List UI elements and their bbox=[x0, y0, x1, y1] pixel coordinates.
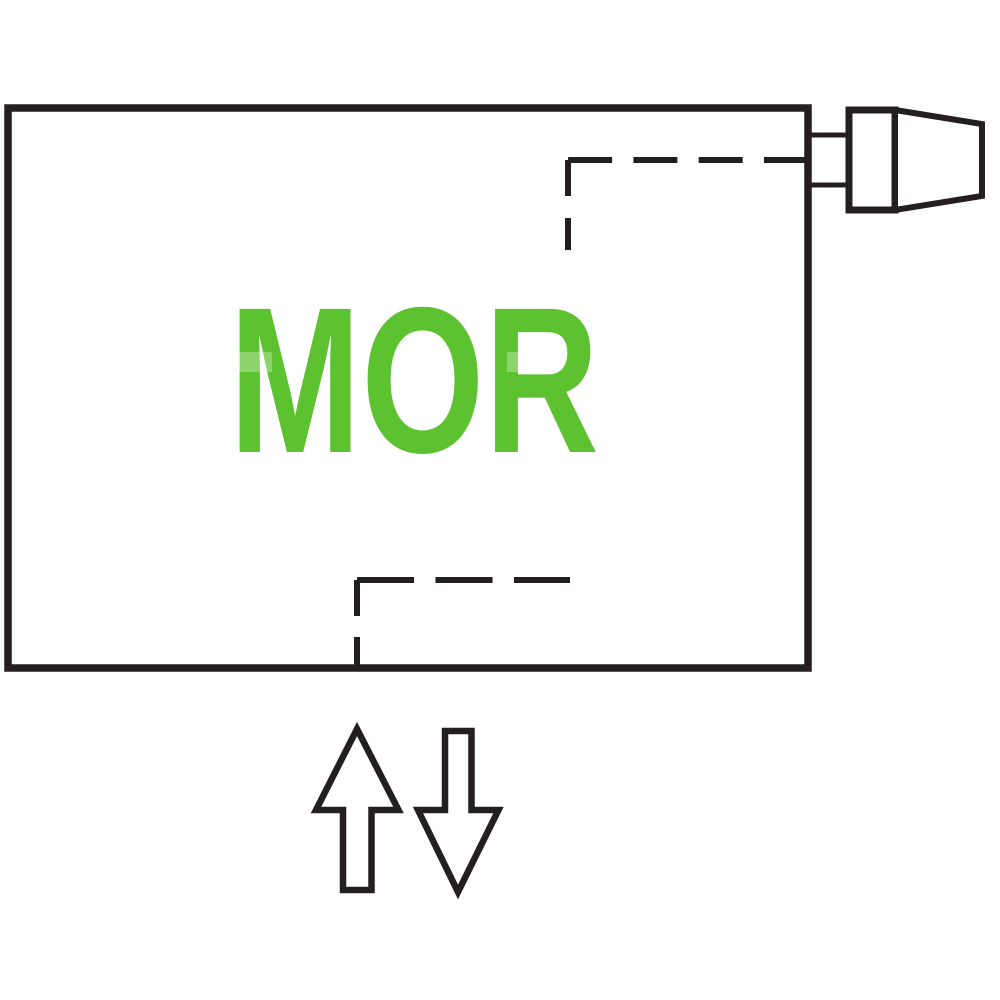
thermostatic-valve-icon bbox=[808, 110, 982, 210]
valve-body bbox=[849, 110, 895, 210]
watermark-artifact bbox=[239, 352, 272, 372]
diagram-canvas: MOR bbox=[0, 0, 1000, 1000]
flow-direction-arrows bbox=[316, 729, 499, 892]
model-label: MOR bbox=[229, 265, 599, 497]
arrow-down-icon bbox=[418, 731, 499, 892]
valve-connection-stem bbox=[808, 135, 850, 185]
radiator-technical-diagram: MOR bbox=[0, 0, 1000, 1000]
valve-knob bbox=[895, 110, 982, 210]
watermark-artifact bbox=[507, 352, 534, 372]
arrow-up-icon bbox=[316, 729, 399, 890]
